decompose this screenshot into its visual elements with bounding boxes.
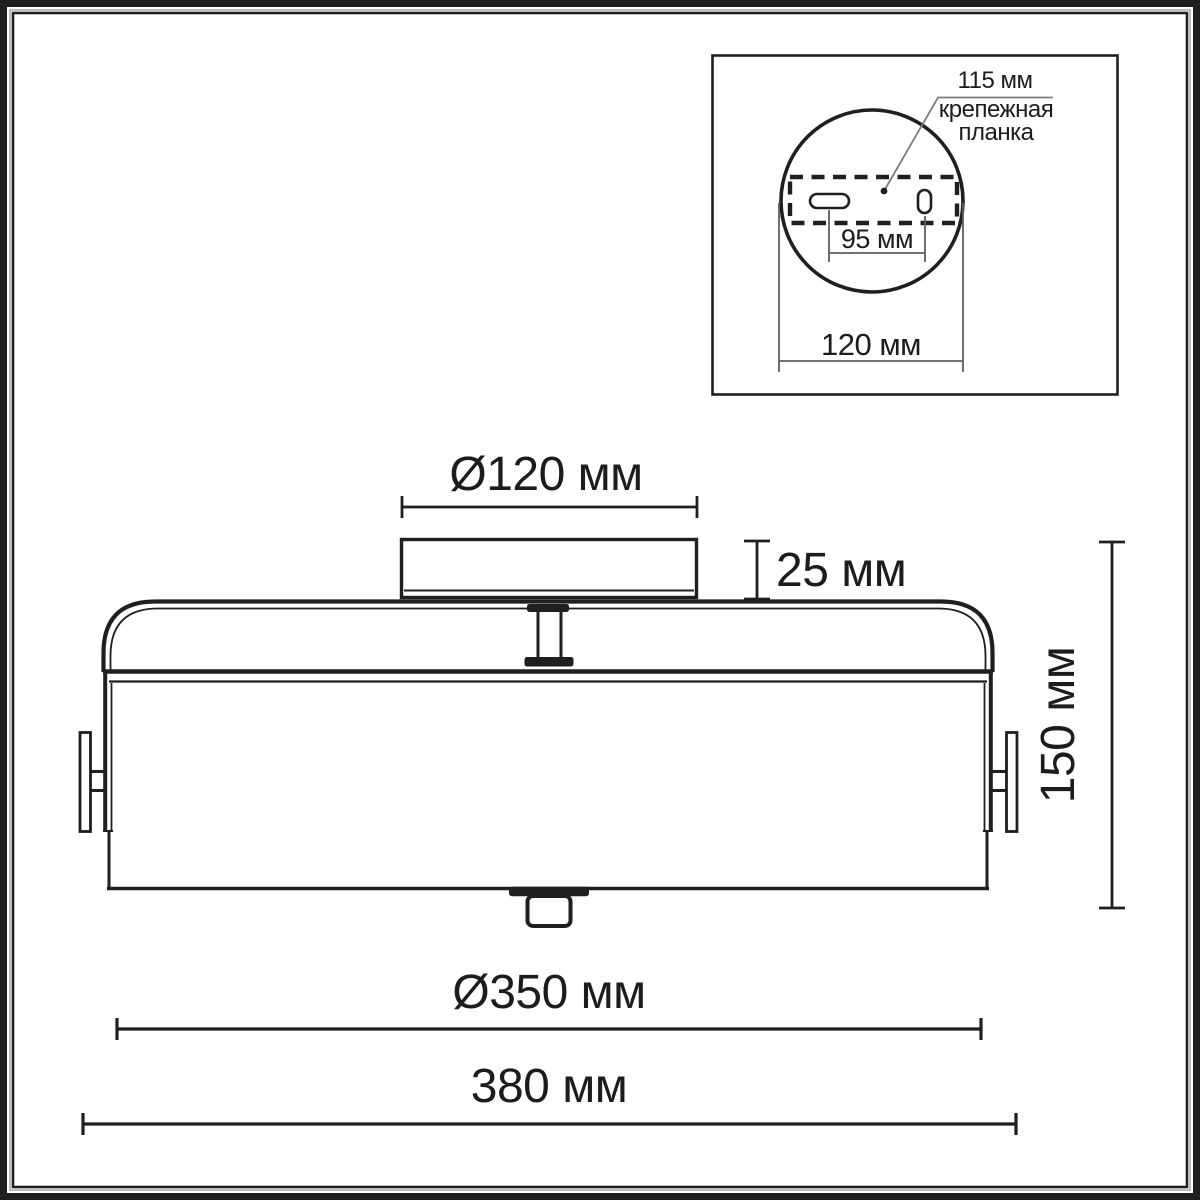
plate-diameter-label: 120 мм — [821, 327, 921, 362]
connector-top-flange — [527, 604, 569, 612]
clip-plate — [1007, 733, 1018, 832]
clip-plate — [80, 733, 91, 832]
canopy-height-label: 25 мм — [776, 544, 906, 597]
body-height-label: 150 мм — [1032, 647, 1085, 803]
ceiling-canopy — [402, 540, 697, 598]
canopy-body — [402, 540, 697, 598]
knob-box — [528, 896, 571, 926]
hole-spacing-label: 95 мм — [841, 224, 913, 254]
canopy-diameter-label: Ø120 мм — [449, 448, 642, 501]
bracket-name-line2: планка — [959, 119, 1035, 146]
overall-width-label: 380 мм — [471, 1060, 627, 1113]
connector-bottom-flange — [525, 657, 574, 667]
shade-diameter-label: Ø350 мм — [452, 966, 645, 1019]
bracket-leader-dot — [881, 188, 888, 195]
lamp-technical-drawing: 115 мм крепежная планка 95 мм 120 мм Ø12… — [0, 0, 1200, 1200]
inset-plate-length-label: 115 мм — [958, 67, 1033, 94]
